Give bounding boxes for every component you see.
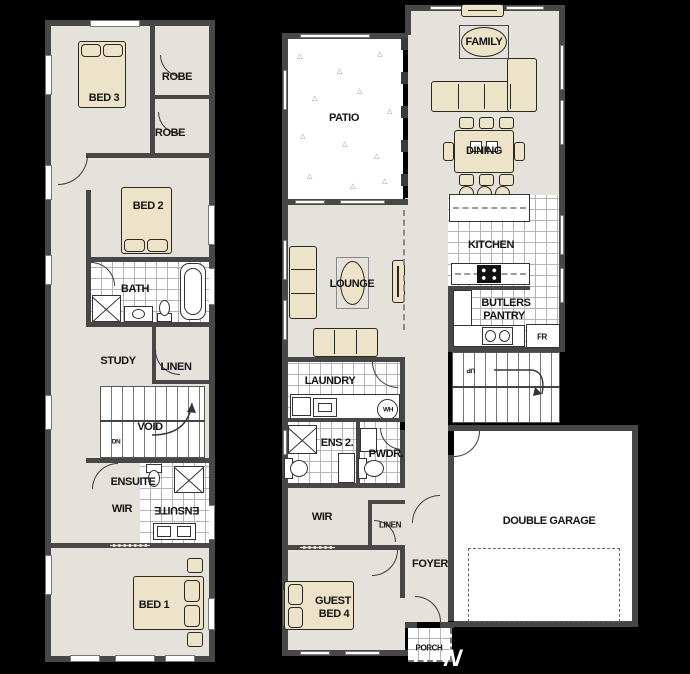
- chair-icon: [499, 174, 514, 186]
- texture-triangle: [350, 183, 355, 190]
- basin-icon: [157, 526, 171, 537]
- sofa-cushion-line: [510, 84, 511, 109]
- bench-dashed-line: [453, 207, 526, 209]
- sink-bowl: [499, 330, 510, 342]
- room-label-butlers-line2: PANTRY: [483, 310, 525, 322]
- texture-triangle: [382, 178, 387, 185]
- tv-icon: [468, 10, 497, 12]
- basin-icon: [177, 526, 191, 537]
- laundry-tub: [292, 397, 311, 416]
- window: [208, 505, 215, 540]
- water-heater-label: WH: [383, 407, 393, 414]
- sofa-cushion-line: [356, 330, 357, 354]
- window: [430, 6, 462, 10]
- garage-door-zone: [468, 548, 620, 622]
- toilet-icon: [284, 458, 308, 479]
- chair-icon: [459, 117, 474, 129]
- texture-triangle: [342, 141, 347, 148]
- basin-icon: [132, 309, 145, 319]
- texture-triangle: [357, 88, 362, 95]
- dashed-opening: [300, 546, 335, 549]
- wall: [282, 483, 405, 488]
- texture-triangle: [374, 153, 379, 160]
- chair-icon: [479, 117, 494, 129]
- room-label-bath: BATH: [121, 283, 149, 295]
- window: [560, 215, 564, 255]
- window: [115, 655, 155, 662]
- sofa-cushion-line: [484, 84, 485, 109]
- chair-icon: [514, 142, 525, 161]
- room-label-robe-top: ROBE: [162, 71, 192, 83]
- chair-icon: [479, 174, 494, 186]
- window: [560, 45, 564, 90]
- window: [283, 300, 287, 340]
- dashed-opening: [110, 544, 150, 547]
- window: [340, 200, 385, 204]
- sofa-cushion-line: [291, 293, 315, 294]
- room-label-ens2: ENS 2.: [321, 437, 353, 449]
- washer-door: [318, 403, 332, 412]
- pillow-icon: [184, 580, 200, 602]
- room-label-bed1: BED 1: [139, 599, 169, 611]
- sofa-cushion-line: [458, 84, 459, 109]
- window: [560, 268, 564, 303]
- room-label-linen: LINEN: [160, 361, 191, 373]
- room-label-ensuite-mirrored: ENSUITE: [155, 504, 200, 516]
- chair-icon: [499, 117, 514, 129]
- room-label-guest-line1: GUEST: [315, 595, 351, 607]
- window: [208, 268, 215, 305]
- wall: [152, 380, 215, 384]
- room-label-kitchen: KITCHEN: [468, 239, 514, 251]
- pillow-icon: [288, 584, 303, 605]
- room-label-powder: PWDR.: [369, 448, 404, 460]
- texture-triangle: [300, 133, 305, 140]
- pillow-icon: [103, 44, 123, 57]
- room-label-dining: DINING: [466, 145, 502, 157]
- shower-icon: [288, 425, 317, 454]
- window: [345, 651, 380, 655]
- room-label-bed2: BED 2: [133, 200, 163, 212]
- window: [45, 165, 52, 200]
- stair-label-up: UP: [467, 367, 475, 374]
- window: [208, 205, 215, 245]
- room-label-porch: PORCH: [416, 644, 443, 653]
- room-label-laundry: LAUNDRY: [305, 375, 356, 387]
- pillow-icon: [124, 239, 145, 252]
- window: [506, 6, 544, 10]
- sofa-icon: [507, 58, 537, 112]
- window: [283, 430, 287, 455]
- chair-icon: [459, 174, 474, 186]
- stair-direction-arrow: [490, 360, 552, 405]
- bathtub-icon: [180, 263, 206, 320]
- wall: [448, 455, 454, 621]
- dashed-opening: [403, 210, 405, 265]
- room-label-butlers-line1: BUTLERS: [481, 297, 530, 309]
- fridge-label: FR: [537, 333, 547, 342]
- floor-plan-canvas: BED 3 ROBE ROBE BED 2 BATH STUDY LINEN V…: [0, 0, 690, 674]
- wall: [405, 5, 411, 35]
- texture-triangle: [337, 68, 342, 75]
- sofa-icon: [313, 328, 378, 357]
- room-label-study: STUDY: [100, 355, 135, 367]
- window: [283, 240, 287, 280]
- texture-triangle: [377, 51, 382, 58]
- texture-triangle: [307, 173, 312, 180]
- window: [560, 100, 564, 145]
- bedside-table: [187, 558, 203, 573]
- stair-label-dn: DN: [112, 439, 121, 446]
- room-label-wir2: WIR: [312, 511, 332, 523]
- pillow-icon: [184, 605, 200, 627]
- wall: [400, 548, 405, 598]
- room-label-foyer: FOYER: [412, 558, 448, 570]
- room-label-void: VOID: [137, 421, 162, 433]
- wall: [632, 425, 638, 627]
- window: [45, 55, 52, 95]
- ens2-vanity: [338, 453, 355, 483]
- texture-triangle: [297, 53, 302, 60]
- texture-triangle: [312, 95, 317, 102]
- chair-icon: [443, 142, 454, 161]
- room-label-bed3: BED 3: [89, 92, 119, 104]
- window: [45, 555, 52, 595]
- pillow-icon: [81, 44, 101, 57]
- wall: [400, 362, 405, 418]
- shower-icon: [92, 295, 121, 322]
- window: [70, 655, 100, 662]
- window: [45, 255, 52, 285]
- room-label-robe-bottom: ROBE: [155, 127, 185, 139]
- pillow-icon: [288, 607, 303, 628]
- room-label-patio: PATIO: [329, 112, 359, 124]
- tv-icon: [397, 266, 399, 297]
- shower-icon: [174, 466, 204, 493]
- wall: [368, 500, 405, 504]
- north-arrow-icon: N: [442, 645, 463, 673]
- window: [283, 70, 287, 110]
- sofa-cushion-line: [334, 330, 335, 354]
- sofa-icon: [289, 246, 317, 319]
- room-label-family: FAMILY: [466, 36, 503, 48]
- window: [300, 34, 370, 38]
- texture-triangle: [387, 108, 392, 115]
- bedside-table: [187, 632, 203, 647]
- dashed-opening: [403, 275, 405, 330]
- toilet-icon: [157, 300, 172, 322]
- room-label-wir: WIR: [112, 503, 132, 515]
- pillow-icon: [147, 239, 168, 252]
- room-label-garage: DOUBLE GARAGE: [503, 515, 596, 527]
- window: [300, 651, 330, 655]
- cooktop-icon: [477, 265, 501, 283]
- room-label-lounge: LOUNGE: [330, 278, 375, 290]
- room-label-linen2: LINEN: [379, 521, 401, 530]
- room-label-guest-line2: BED 4: [319, 608, 349, 620]
- wall: [86, 322, 215, 327]
- toilet-icon: [358, 458, 384, 479]
- sofa-cushion-line: [291, 269, 315, 270]
- room-label-ensuite: ENSUITE: [111, 476, 156, 488]
- window: [45, 395, 52, 430]
- window: [165, 655, 195, 662]
- sink-bowl: [485, 330, 496, 342]
- window: [90, 20, 140, 27]
- wall: [150, 95, 215, 99]
- window: [295, 200, 325, 204]
- wall: [368, 500, 372, 545]
- window: [208, 598, 215, 630]
